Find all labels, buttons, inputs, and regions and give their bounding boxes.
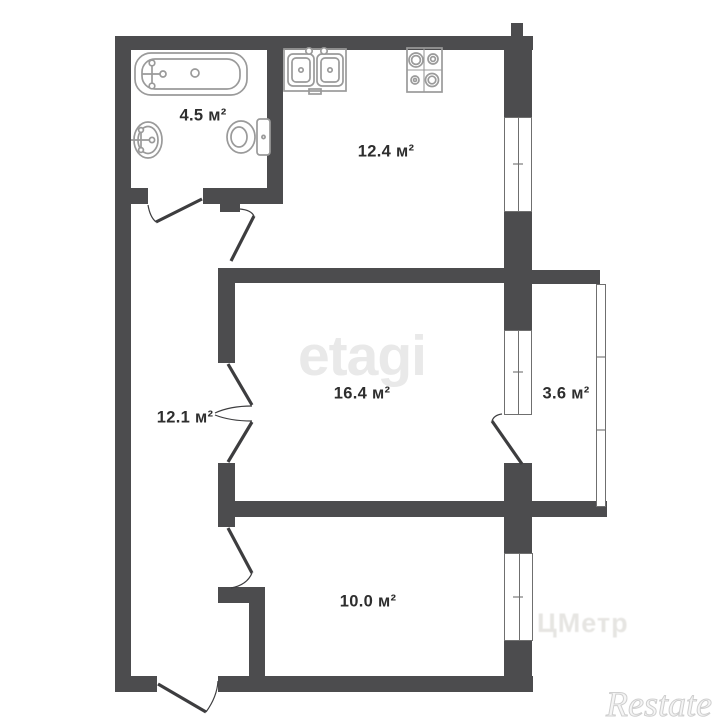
wall-left bbox=[115, 36, 131, 692]
bedroom-window bbox=[504, 553, 533, 641]
wall-hallway-lower bbox=[218, 463, 235, 527]
toilet-icon bbox=[227, 119, 270, 155]
entrance-door bbox=[158, 681, 218, 712]
window-mullion bbox=[518, 331, 519, 414]
wall-bathroom-right bbox=[267, 36, 283, 204]
living-room-area-label: 16.4 м² bbox=[334, 385, 391, 404]
wall-hallway-upper bbox=[218, 268, 235, 363]
bedroom-door bbox=[228, 528, 252, 588]
living-room-double-door bbox=[215, 364, 252, 462]
bedroom-area-label: 10.0 м² bbox=[340, 593, 397, 612]
wall-bathroom-bottom-left bbox=[115, 188, 148, 204]
wall-bathroom-bottom-right bbox=[203, 188, 283, 204]
balcony-area-label: 3.6 м² bbox=[542, 385, 589, 404]
wall-right-seg1 bbox=[504, 36, 532, 117]
balcony-glazing bbox=[596, 284, 606, 507]
bathroom-door bbox=[148, 199, 202, 222]
window-mullion bbox=[518, 118, 519, 211]
kitchen-window bbox=[504, 117, 532, 212]
kitchen-area-label: 12.4 м² bbox=[358, 143, 415, 162]
faint-watermark: ЦМетр bbox=[537, 608, 629, 639]
wall-bottom-main bbox=[218, 676, 533, 692]
etagi-watermark: etagi bbox=[298, 323, 426, 389]
living-room-window bbox=[504, 330, 532, 415]
balcony-door bbox=[492, 414, 522, 464]
wall-top bbox=[115, 36, 533, 50]
wall-balcony-top bbox=[532, 270, 600, 284]
window-mullion bbox=[519, 554, 520, 640]
wall-hallway-corner bbox=[249, 587, 265, 676]
bathtub-icon bbox=[135, 53, 247, 95]
floor-plan-image: etagi ЦМетр Restate bbox=[0, 0, 725, 725]
kitchen-door-jamb bbox=[220, 204, 240, 212]
wall-top-vent-stub bbox=[511, 23, 523, 36]
wall-bedroom-top bbox=[235, 501, 607, 517]
double-sink-icon bbox=[284, 48, 346, 94]
hallway-area-label: 12.1 м² bbox=[157, 409, 214, 428]
kitchen-door bbox=[231, 209, 254, 261]
bathroom-area-label: 4.5 м² bbox=[179, 107, 226, 126]
wall-right-seg4 bbox=[504, 641, 532, 692]
wall-bottom-left bbox=[115, 676, 157, 692]
fixtures bbox=[131, 48, 442, 158]
stove-icon bbox=[407, 48, 442, 92]
restate-watermark: Restate bbox=[606, 683, 712, 725]
wall-living-top bbox=[218, 268, 532, 283]
sink-icon bbox=[131, 122, 162, 158]
